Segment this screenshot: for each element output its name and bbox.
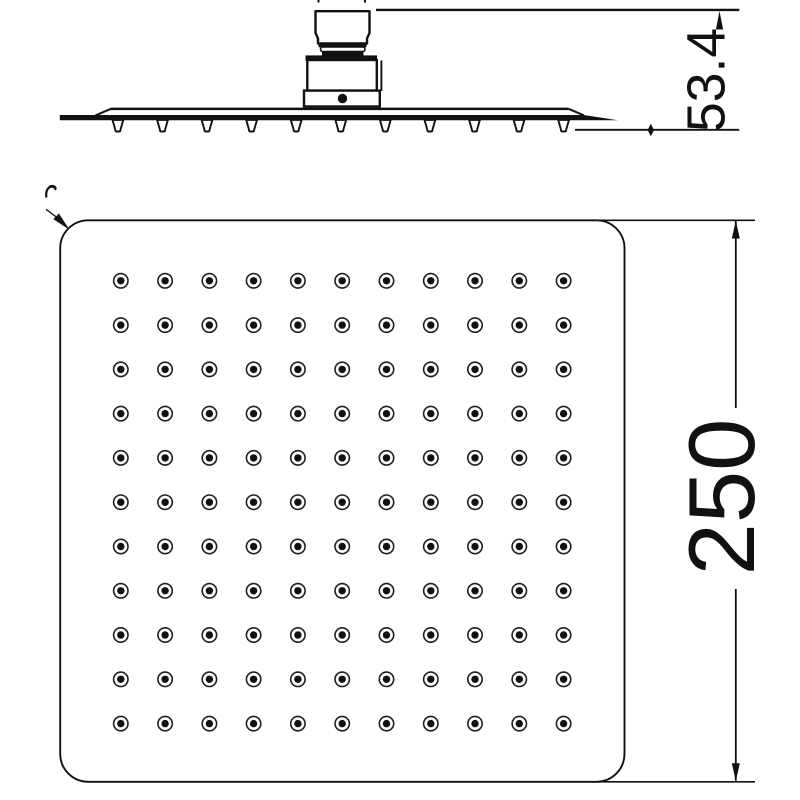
svg-text:250: 250 — [669, 419, 774, 576]
svg-text:53.4: 53.4 — [678, 28, 737, 132]
